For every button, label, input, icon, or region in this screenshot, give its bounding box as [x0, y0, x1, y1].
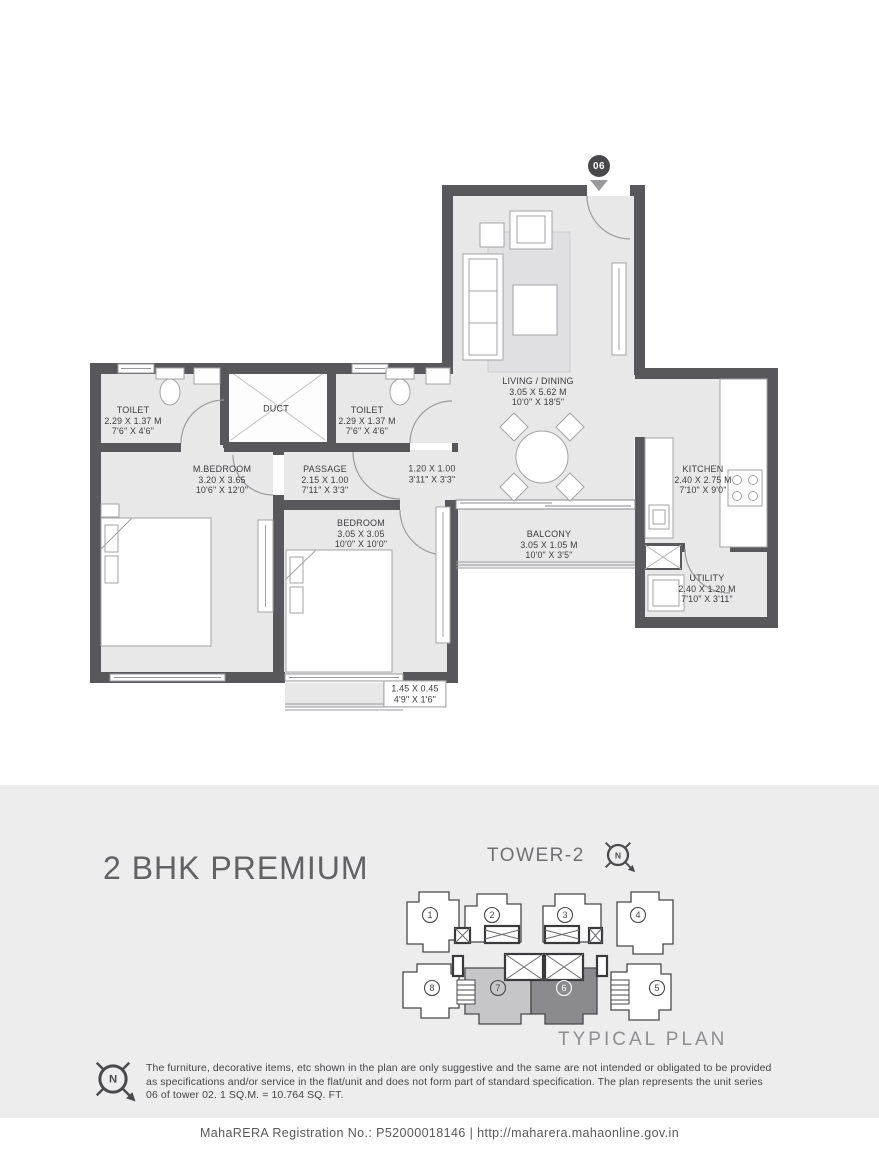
key-unit-1-number: 1: [427, 910, 432, 920]
room-label-balcony: BALCONY 3.05 X 1.05 M 10'0" X 3'5": [520, 529, 577, 561]
typical-plan-label: TYPICAL PLAN: [558, 1029, 727, 1051]
sofa-icon: [463, 254, 503, 360]
key-unit-6-number: 6: [561, 983, 566, 993]
key-unit-4: [617, 892, 673, 954]
tv-unit-icon: [612, 263, 626, 355]
room-label-toilet-2: TOILET 2.29 X 1.37 M 7'6" X 4'6": [338, 405, 395, 437]
armchair-icon: [510, 211, 552, 249]
room-label-foyer: 1.20 X 1.00 3'11" X 3'3": [408, 463, 455, 484]
room-label-living-dining: LIVING / DINING 3.05 X 5.62 M 10'0" X 18…: [502, 376, 574, 408]
room-label-m-bedroom: M.BEDROOM 3.20 X 3.65 10'6" X 12'0": [193, 464, 251, 496]
unit-marker-arrow-icon: [590, 180, 608, 191]
svg-text:N: N: [615, 850, 621, 860]
room-label-bedroom: BEDROOM 3.05 X 3.05 10'0" X 10'0": [335, 518, 387, 550]
floor-plan-svg: [90, 155, 780, 720]
key-plan-svg: 1 2 3 4 8 7 6 5: [393, 876, 693, 1026]
floor-plan-area: 06 TOILET 2.29 X 1.37 M 7'6" X 4'6" DUCT…: [0, 0, 879, 785]
tower-label: TOWER-2: [487, 845, 585, 867]
balcony-slider: [456, 500, 635, 509]
rera-registration-text: MahaRERA Registration No.: P52000018146 …: [0, 1126, 879, 1140]
master-bed-icon: [101, 504, 211, 646]
room-label-deck: 1.45 X 0.45 4'9" X 1'6": [383, 680, 446, 707]
room-label-passage: PASSAGE 2.15 X 1.00 7'11" X 3'3": [301, 464, 348, 496]
unit-type-title: 2 BHK PREMIUM: [103, 850, 368, 887]
kitchen-duct-icon: [645, 545, 681, 569]
key-unit-5-number: 5: [654, 983, 659, 993]
key-unit-7-number: 7: [495, 983, 500, 993]
svg-text:N: N: [109, 1074, 117, 1086]
unit-number-marker: 06: [588, 155, 610, 177]
disclaimer-compass-icon: N: [88, 1054, 138, 1104]
room-label-toilet-1: TOILET 2.29 X 1.37 M 7'6" X 4'6": [104, 405, 161, 437]
key-unit-3-number: 3: [562, 910, 567, 920]
room-label-kitchen: KITCHEN 2.40 X 2.75 M 7'10" X 9'0": [674, 464, 731, 496]
disclaimer-text: The furniture, decorative items, etc sho…: [146, 1062, 766, 1103]
key-unit-8-number: 8: [429, 983, 434, 993]
key-unit-2-number: 2: [489, 910, 494, 920]
room-label-duct: DUCT: [263, 404, 289, 415]
key-unit-4-number: 4: [635, 910, 640, 920]
bed-icon: [286, 550, 392, 672]
compass-icon: N: [599, 836, 637, 874]
side-table-icon: [480, 223, 504, 247]
coffee-table-icon: [513, 285, 557, 335]
room-label-utility: UTILITY 2.40 X 1.20 M 7'10" X 3'11": [678, 573, 735, 605]
